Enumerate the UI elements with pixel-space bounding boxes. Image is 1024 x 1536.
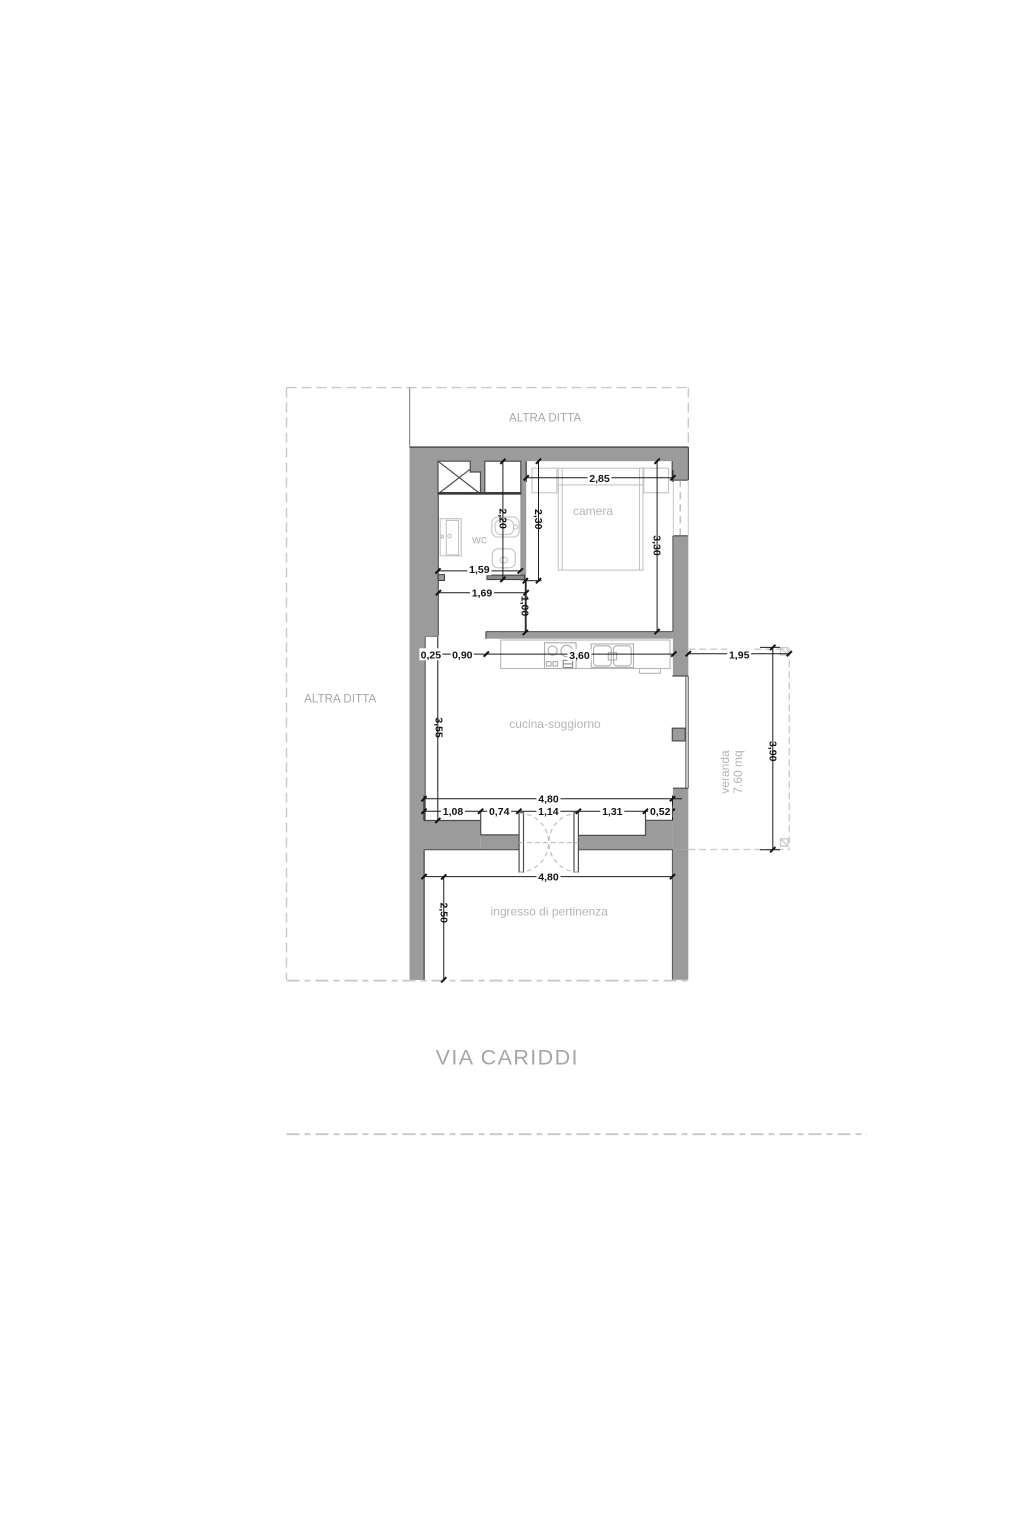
svg-text:3,55: 3,55	[432, 717, 444, 738]
svg-text:cucina-soggiorno: cucina-soggiorno	[509, 717, 601, 731]
svg-text:0,74: 0,74	[489, 806, 510, 818]
svg-text:2,30: 2,30	[532, 509, 544, 530]
svg-text:0,25: 0,25	[421, 649, 442, 661]
svg-text:0,52: 0,52	[650, 806, 671, 818]
svg-text:4,80: 4,80	[538, 794, 559, 806]
svg-text:3,90: 3,90	[767, 741, 779, 762]
svg-text:1,59: 1,59	[469, 564, 490, 576]
svg-text:1,95: 1,95	[729, 650, 750, 662]
svg-text:3,30: 3,30	[650, 535, 662, 556]
svg-text:1,14: 1,14	[538, 806, 559, 818]
svg-text:veranda: veranda	[718, 750, 732, 794]
svg-text:1,08: 1,08	[443, 806, 464, 818]
svg-text:ALTRA DITTA: ALTRA DITTA	[509, 412, 581, 424]
svg-text:2,50: 2,50	[438, 902, 450, 923]
svg-text:ALTRA DITTA: ALTRA DITTA	[304, 694, 376, 706]
svg-text:3,60: 3,60	[569, 650, 590, 662]
svg-text:2,20: 2,20	[497, 508, 509, 529]
svg-text:1,00: 1,00	[519, 596, 531, 617]
svg-text:0,90: 0,90	[452, 649, 473, 661]
svg-text:2,85: 2,85	[589, 473, 610, 485]
svg-text:1,31: 1,31	[602, 806, 623, 818]
svg-text:1,69: 1,69	[472, 588, 493, 600]
svg-text:camera: camera	[573, 504, 613, 518]
svg-text:ingresso di pertinenza: ingresso di pertinenza	[490, 905, 608, 919]
svg-text:wc: wc	[471, 533, 487, 547]
svg-text:4,80: 4,80	[538, 872, 559, 884]
svg-text:7.60 mq: 7.60 mq	[731, 750, 745, 793]
svg-text:VIA CARIDDI: VIA CARIDDI	[436, 1046, 579, 1070]
